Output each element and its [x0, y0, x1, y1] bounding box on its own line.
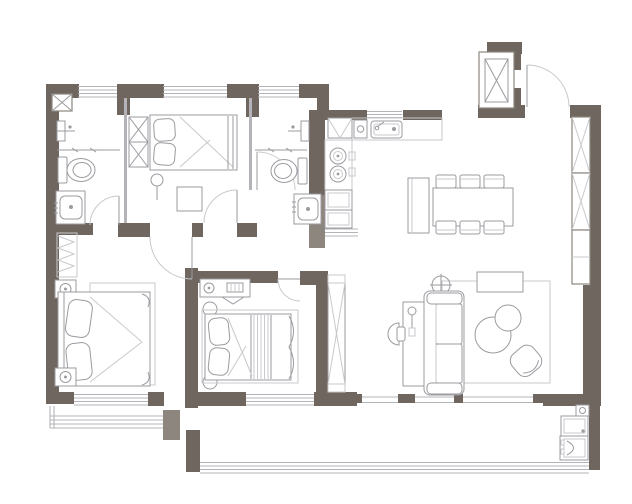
bathroom-1 — [54, 121, 120, 224]
balcony-railing-window — [200, 463, 589, 474]
vanity-sink-icon — [54, 191, 85, 224]
master-bedroom — [55, 233, 155, 386]
cooktop-icon — [330, 148, 355, 182]
shower-fixture-icon — [288, 121, 309, 141]
elevator-icon — [479, 52, 514, 108]
entry-door-swing — [527, 65, 569, 107]
laundry-sink-icon — [561, 416, 588, 436]
balcony — [560, 405, 589, 460]
walls — [46, 42, 601, 472]
window-master-south — [74, 395, 148, 406]
desk — [403, 302, 425, 386]
glass-partition-icon — [255, 148, 307, 152]
single-bed — [150, 115, 237, 170]
dining-area — [408, 175, 513, 234]
window-top-1 — [78, 87, 117, 98]
console — [477, 272, 523, 292]
side-table — [177, 187, 202, 211]
dining-chairs-top — [436, 175, 504, 188]
floor-plan-svg — [0, 0, 632, 504]
shower-fixture-icon — [57, 121, 75, 141]
radiator-icon — [57, 233, 77, 277]
window-bedroom3-south — [246, 395, 314, 406]
vanity-sink-icon — [292, 194, 321, 224]
dining-table — [433, 188, 513, 226]
window-top-2 — [163, 87, 227, 98]
wardrobe-icon — [328, 275, 345, 392]
striped-runner — [251, 315, 271, 379]
bedroom-2 — [129, 115, 237, 211]
wardrobe-icon — [129, 117, 148, 167]
dining-chairs-bottom — [436, 221, 504, 234]
sofa — [424, 291, 464, 395]
entry-storage-cabinets — [572, 117, 590, 284]
desk-chair — [388, 323, 405, 345]
bay-window-master — [50, 406, 163, 428]
floor-plan-image — [0, 0, 632, 504]
coffee-tables — [475, 305, 521, 353]
armchair — [507, 342, 546, 381]
tap-box-icon — [576, 405, 589, 416]
toilet-icon — [58, 157, 95, 183]
glass-partition-icon — [57, 148, 120, 152]
bedroom3-door-swing — [278, 279, 300, 301]
double-bed — [202, 310, 298, 383]
bedroom2-door-swing — [204, 190, 237, 223]
window-kitchen — [367, 112, 402, 118]
fridge-icon — [328, 118, 352, 138]
base-cabinets — [325, 190, 352, 228]
small-appliance-icon — [354, 120, 367, 138]
washing-machine-icon — [560, 436, 588, 460]
living-room — [388, 272, 550, 395]
sideboard — [408, 178, 429, 233]
floor-lamp-icon — [151, 174, 163, 200]
toilet-icon — [271, 158, 307, 184]
pass-counter — [325, 229, 358, 236]
kitchen-sink-icon — [371, 121, 402, 138]
window-top-3 — [258, 87, 299, 98]
screenshot: { "meta": { "title": "apartment-floor-pl… — [0, 0, 632, 504]
bathroom1-door-swing — [90, 196, 119, 225]
corner-pillar-icon — [52, 94, 72, 111]
counter-side — [325, 140, 352, 190]
dresser — [200, 279, 250, 304]
nightstand-lamp-icon — [55, 368, 76, 386]
